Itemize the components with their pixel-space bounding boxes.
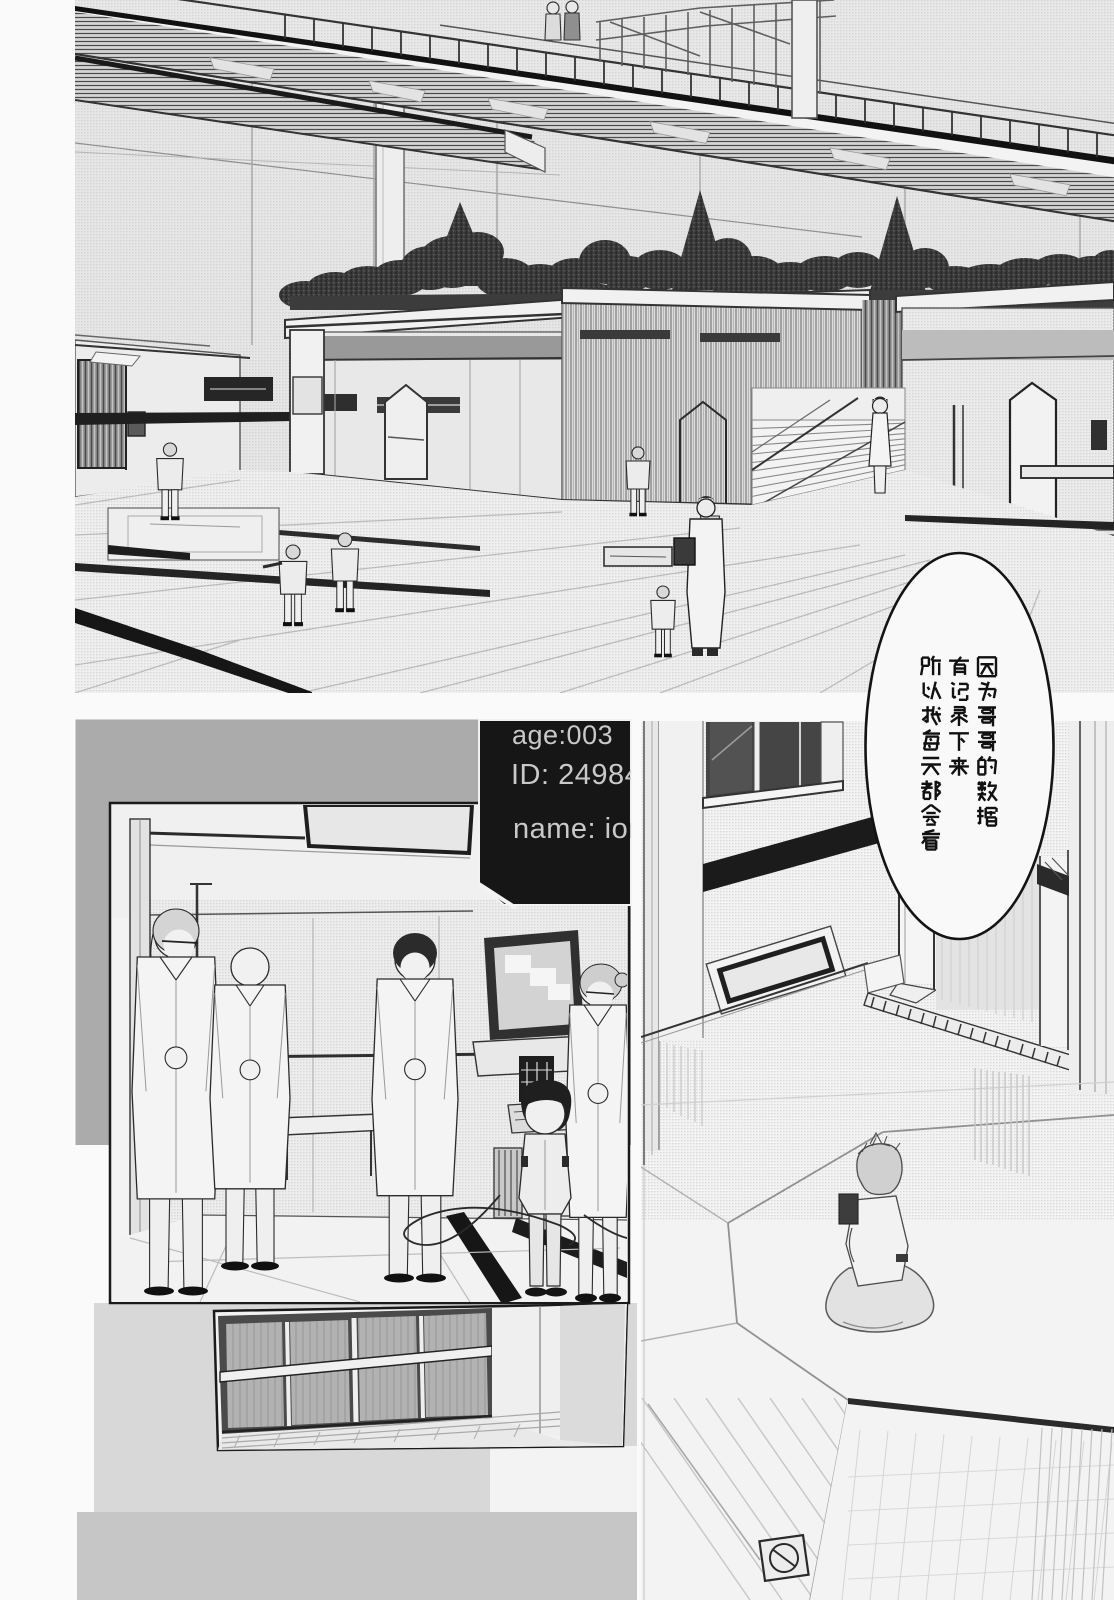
svg-text:age:003: age:003 — [512, 720, 613, 750]
svg-text:name: iori: name: iori — [513, 813, 645, 845]
